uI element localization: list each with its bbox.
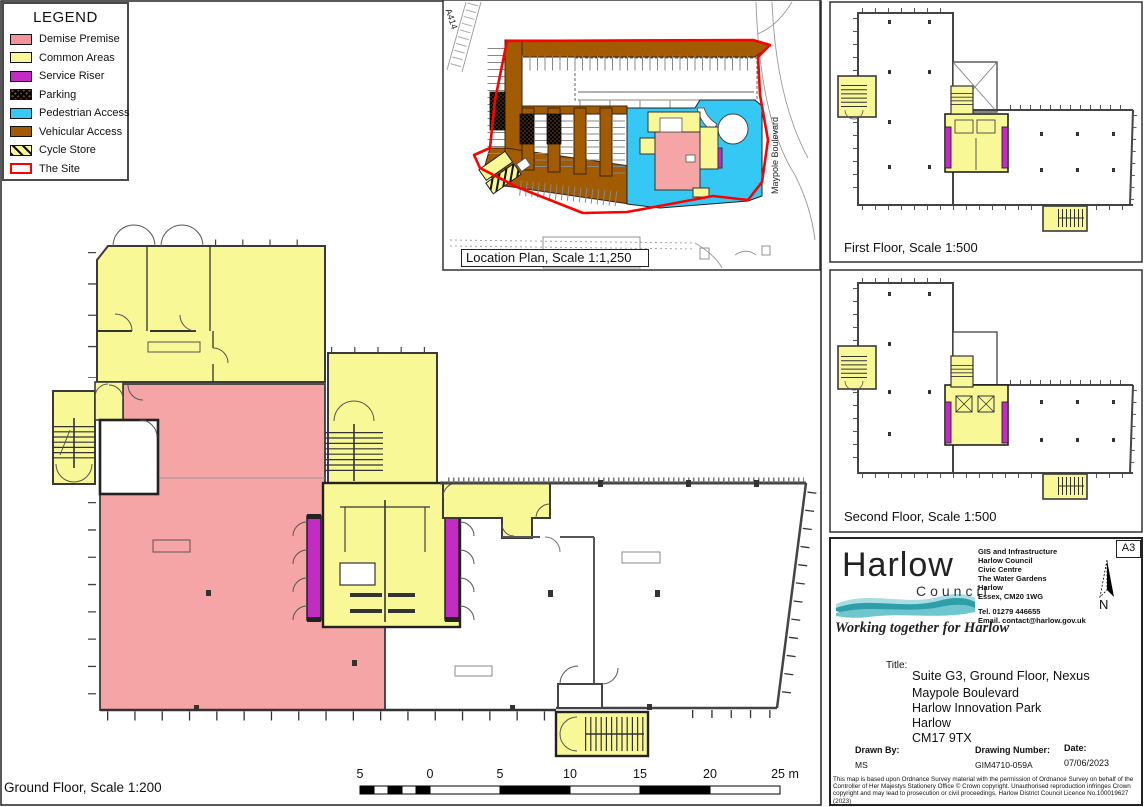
gf-service-riser-left: [307, 514, 321, 622]
title-label: Title:: [886, 660, 907, 671]
legend-item-pedestrian: Pedestrian Access: [10, 107, 127, 119]
scale-label: 5: [497, 767, 504, 781]
legend-label: Vehicular Access: [39, 126, 122, 138]
gf-central-core: [323, 483, 460, 627]
cycle-swatch-icon: [10, 145, 32, 156]
drawing-sheet: LEGEND Demise Premise Common Areas Servi…: [0, 0, 1144, 807]
legend-label: The Site: [39, 163, 80, 175]
legend-item-common: Common Areas: [10, 52, 127, 64]
gf-common-top-block: [97, 243, 325, 382]
logo-wordmark: Harlow: [842, 546, 954, 585]
gf-service-riser-right: [445, 514, 459, 622]
legend-item-demise: Demise Premise: [10, 33, 127, 45]
gf-central-tower: [328, 350, 437, 483]
ground-floor-plan: [53, 225, 812, 756]
address-line: Essex, CM20 1WG: [978, 592, 1043, 602]
scale-label: 5: [357, 767, 364, 781]
scale-label: 20: [703, 767, 717, 781]
gf-vestibule-south: [558, 666, 618, 708]
site-swatch-icon: [10, 163, 32, 174]
scale-label: 10: [563, 767, 577, 781]
drawing-title-line: Harlow Innovation Park: [912, 701, 1041, 715]
legend-item-site: The Site: [10, 163, 127, 175]
first-floor-caption: First Floor, Scale 1:500: [844, 240, 978, 255]
legend-label: Service Riser: [39, 70, 104, 82]
paper-size-badge: A3: [1116, 540, 1141, 558]
legend-label: Pedestrian Access: [39, 107, 130, 119]
ff-stair-west: [838, 76, 876, 119]
second-floor-plan: [830, 270, 1142, 532]
legend-item-vehicular: Vehicular Access: [10, 126, 127, 138]
second-floor-caption: Second Floor, Scale 1:500: [844, 509, 997, 524]
legend-item-cycle: Cycle Store: [10, 144, 127, 156]
copyright-text: This map is based upon Ordnance Survey m…: [833, 776, 1139, 805]
drawing-title-line: CM17 9TX: [912, 731, 972, 745]
scale-bar: [360, 786, 780, 794]
date-label: Date:: [1064, 743, 1087, 753]
scale-label: 0: [427, 767, 434, 781]
gf-white-room: [100, 420, 158, 494]
drawing-number-value: GIM4710-059A: [975, 760, 1033, 770]
drawing-title-line: Maypole Boulevard: [912, 686, 1019, 700]
sf-stair-southeast: [1043, 474, 1087, 499]
legend: LEGEND Demise Premise Common Areas Servi…: [2, 2, 129, 181]
scale-label: 25 m: [771, 767, 799, 781]
legend-label: Demise Premise: [39, 33, 120, 45]
ff-stair-southeast: [1043, 206, 1087, 231]
drawn-by-label: Drawn By:: [855, 745, 900, 755]
location-plan: [443, 0, 820, 270]
parking-swatch-icon: [10, 89, 32, 100]
email: Email. contact@harlow.gov.uk: [978, 616, 1086, 626]
legend-label: Common Areas: [39, 52, 115, 64]
legend-label: Cycle Store: [39, 144, 96, 156]
common-swatch-icon: [10, 52, 32, 63]
gf-stair-south: [556, 712, 648, 756]
legend-item-parking: Parking: [10, 89, 127, 101]
legend-title: LEGEND: [4, 9, 127, 26]
legend-label: Parking: [39, 89, 76, 101]
gf-vestibule-west: [95, 382, 123, 420]
drawn-by-value: MS: [855, 760, 868, 770]
north-label: N: [1099, 597, 1108, 612]
demise-swatch-icon: [10, 34, 32, 45]
location-plan-caption: Location Plan, Scale 1:1,250: [461, 249, 649, 267]
sf-stair-west: [838, 346, 876, 390]
gf-stair-west: [53, 391, 95, 484]
date-value: 07/06/2023: [1064, 758, 1109, 768]
ground-floor-caption: Ground Floor, Scale 1:200: [4, 780, 162, 795]
drawing-title: Suite G3, Ground Floor, Nexus: [912, 668, 1090, 683]
riser-swatch-icon: [10, 71, 32, 82]
drawing-title-line: Harlow: [912, 716, 951, 730]
vehicular-swatch-icon: [10, 126, 32, 137]
road-label-maypole: Maypole Boulevard: [770, 76, 780, 194]
scale-label: 15: [633, 767, 647, 781]
drawing-number-label: Drawing Number:: [975, 745, 1050, 755]
pedestrian-swatch-icon: [10, 108, 32, 119]
first-floor-plan: [830, 2, 1142, 262]
legend-item-riser: Service Riser: [10, 70, 127, 82]
